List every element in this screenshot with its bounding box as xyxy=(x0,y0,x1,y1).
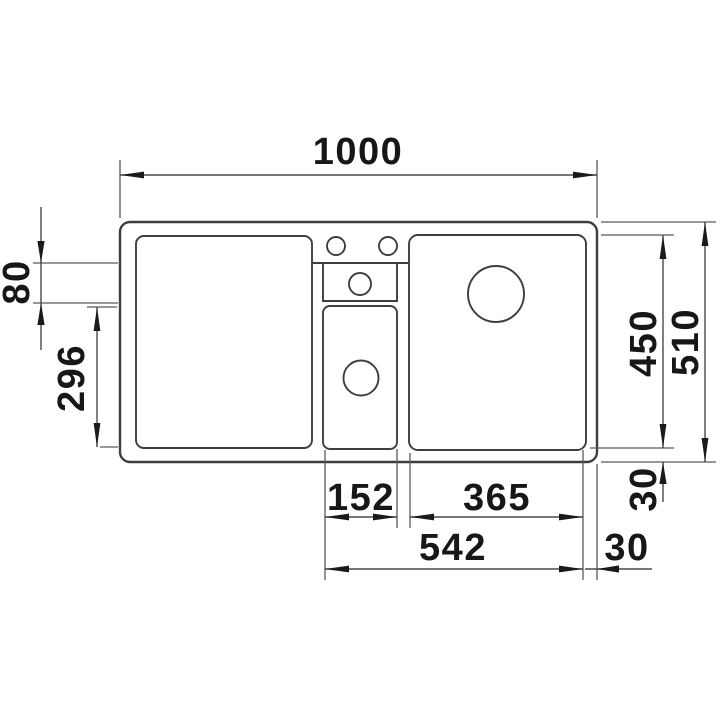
dim-overall-width: 1000 xyxy=(120,131,597,218)
dim-label-296: 296 xyxy=(51,344,93,412)
sink-dimension-drawing: 1000 80 296 450 xyxy=(0,0,720,720)
drawing-page: 1000 80 296 450 xyxy=(0,0,720,720)
half-bowl xyxy=(323,306,397,449)
arrow-up xyxy=(37,303,44,325)
tap-hole-left xyxy=(327,237,345,255)
dim-right-edge-offset: 30 xyxy=(623,462,667,512)
sink-outer-rim xyxy=(120,222,597,462)
tray-drain-hole xyxy=(349,273,371,295)
main-bowl-drain xyxy=(468,266,524,322)
drainboard xyxy=(136,236,312,448)
sink-outline xyxy=(120,222,597,462)
dim-bowl-depth: 450 xyxy=(590,235,674,448)
dim-main-bowl-width: 365 xyxy=(410,477,583,519)
dim-label-365: 365 xyxy=(463,477,531,519)
dim-label-30-bottom: 30 xyxy=(604,527,649,569)
main-bowl xyxy=(409,235,586,450)
dim-bowls-total-width: 542 xyxy=(325,527,583,569)
dim-bottom-edge-offset: 30 xyxy=(585,527,652,573)
dim-half-bowl-width: 152 xyxy=(325,477,397,519)
arrow-down xyxy=(37,241,44,263)
dim-label-30-right: 30 xyxy=(623,466,665,511)
dim-label-510: 510 xyxy=(665,308,707,376)
half-bowl-drain xyxy=(344,361,379,396)
dim-label-1000: 1000 xyxy=(313,131,404,173)
dim-label-542: 542 xyxy=(419,527,487,569)
dim-label-450: 450 xyxy=(623,309,665,377)
dim-tap-ledge-depth: 80 xyxy=(0,207,118,350)
tap-hole-right xyxy=(379,237,397,255)
dim-label-80: 80 xyxy=(0,259,38,304)
dim-half-bowl-depth: 296 xyxy=(51,307,118,447)
dim-label-152: 152 xyxy=(327,477,395,519)
